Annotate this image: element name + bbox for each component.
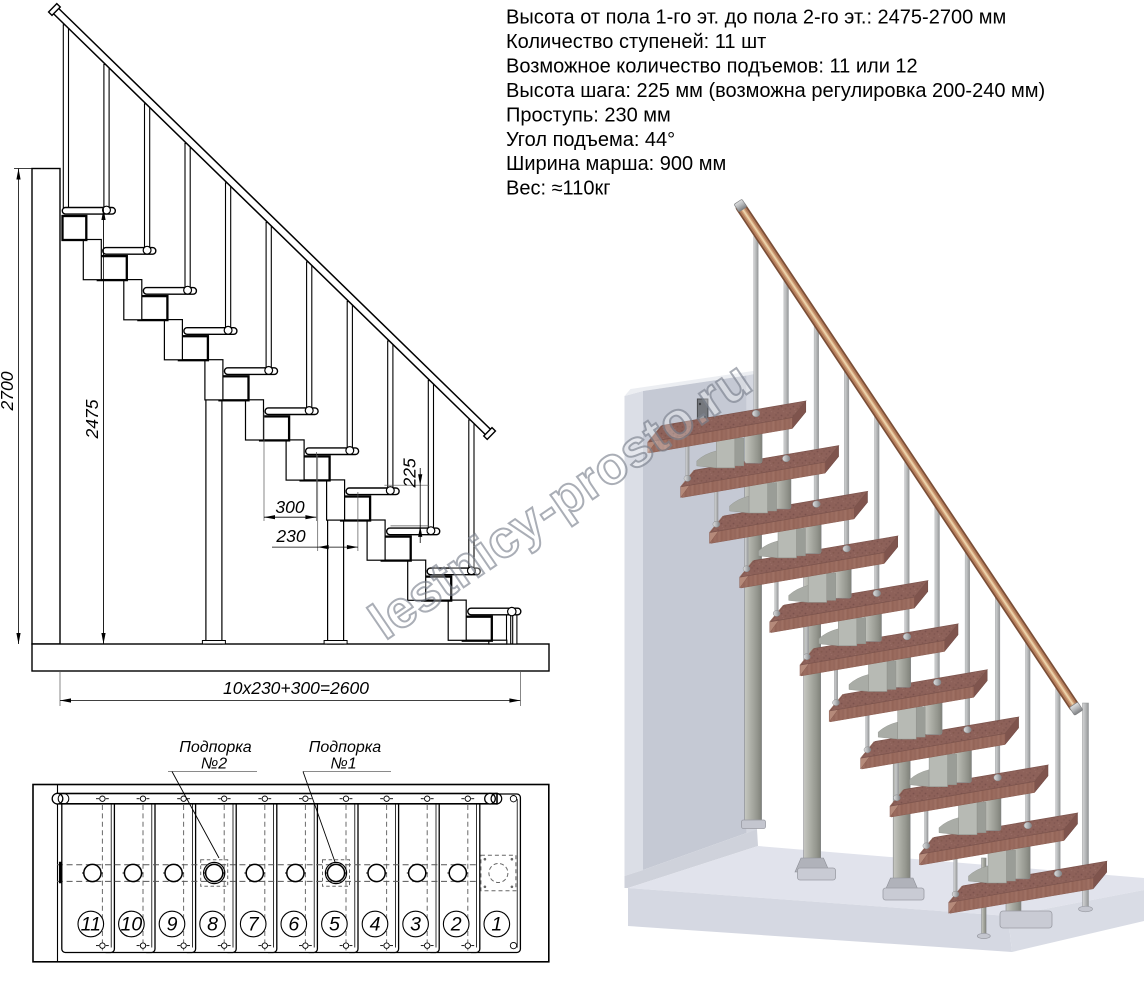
svg-text:2475: 2475: [82, 399, 102, 439]
svg-text:8: 8: [207, 914, 218, 936]
svg-text:№2: №2: [201, 756, 227, 773]
svg-text:Проступь: 230 мм: Проступь: 230 мм: [506, 104, 671, 126]
svg-text:230: 230: [275, 526, 305, 546]
svg-text:10: 10: [121, 914, 143, 936]
svg-text:5: 5: [329, 914, 340, 936]
svg-text:9: 9: [167, 914, 178, 936]
svg-text:Ширина марша: 900 мм: Ширина марша: 900 мм: [506, 153, 726, 175]
svg-text:Возможное количество подъемов:: Возможное количество подъемов: 11 или 12: [506, 55, 918, 77]
svg-text:300: 300: [275, 497, 304, 517]
svg-text:Подпорка: Подпорка: [309, 739, 381, 756]
svg-text:6: 6: [288, 914, 299, 936]
svg-text:225: 225: [400, 458, 420, 488]
svg-text:10x230+300=2600: 10x230+300=2600: [223, 678, 369, 698]
svg-text:11: 11: [81, 914, 101, 936]
svg-text:3: 3: [410, 914, 421, 936]
svg-text:Высота от пола 1-го эт. до пол: Высота от пола 1-го эт. до пола 2-го эт.…: [506, 7, 1006, 29]
svg-text:1: 1: [491, 914, 502, 936]
svg-text:4: 4: [370, 914, 381, 936]
svg-text:Подпорка: Подпорка: [179, 739, 251, 756]
svg-text:Угол подъема: 44°: Угол подъема: 44°: [506, 129, 675, 151]
svg-text:2700: 2700: [0, 371, 17, 411]
svg-text:Вес: ≈110кг: Вес: ≈110кг: [506, 178, 610, 200]
svg-text:Количество ступеней: 11 шт: Количество ступеней: 11 шт: [506, 31, 766, 53]
svg-text:7: 7: [248, 914, 260, 936]
svg-text:№1: №1: [330, 756, 356, 773]
svg-text:Высота шага: 225 мм (возможна: Высота шага: 225 мм (возможна регулировк…: [506, 80, 1045, 102]
svg-text:2: 2: [450, 914, 462, 936]
